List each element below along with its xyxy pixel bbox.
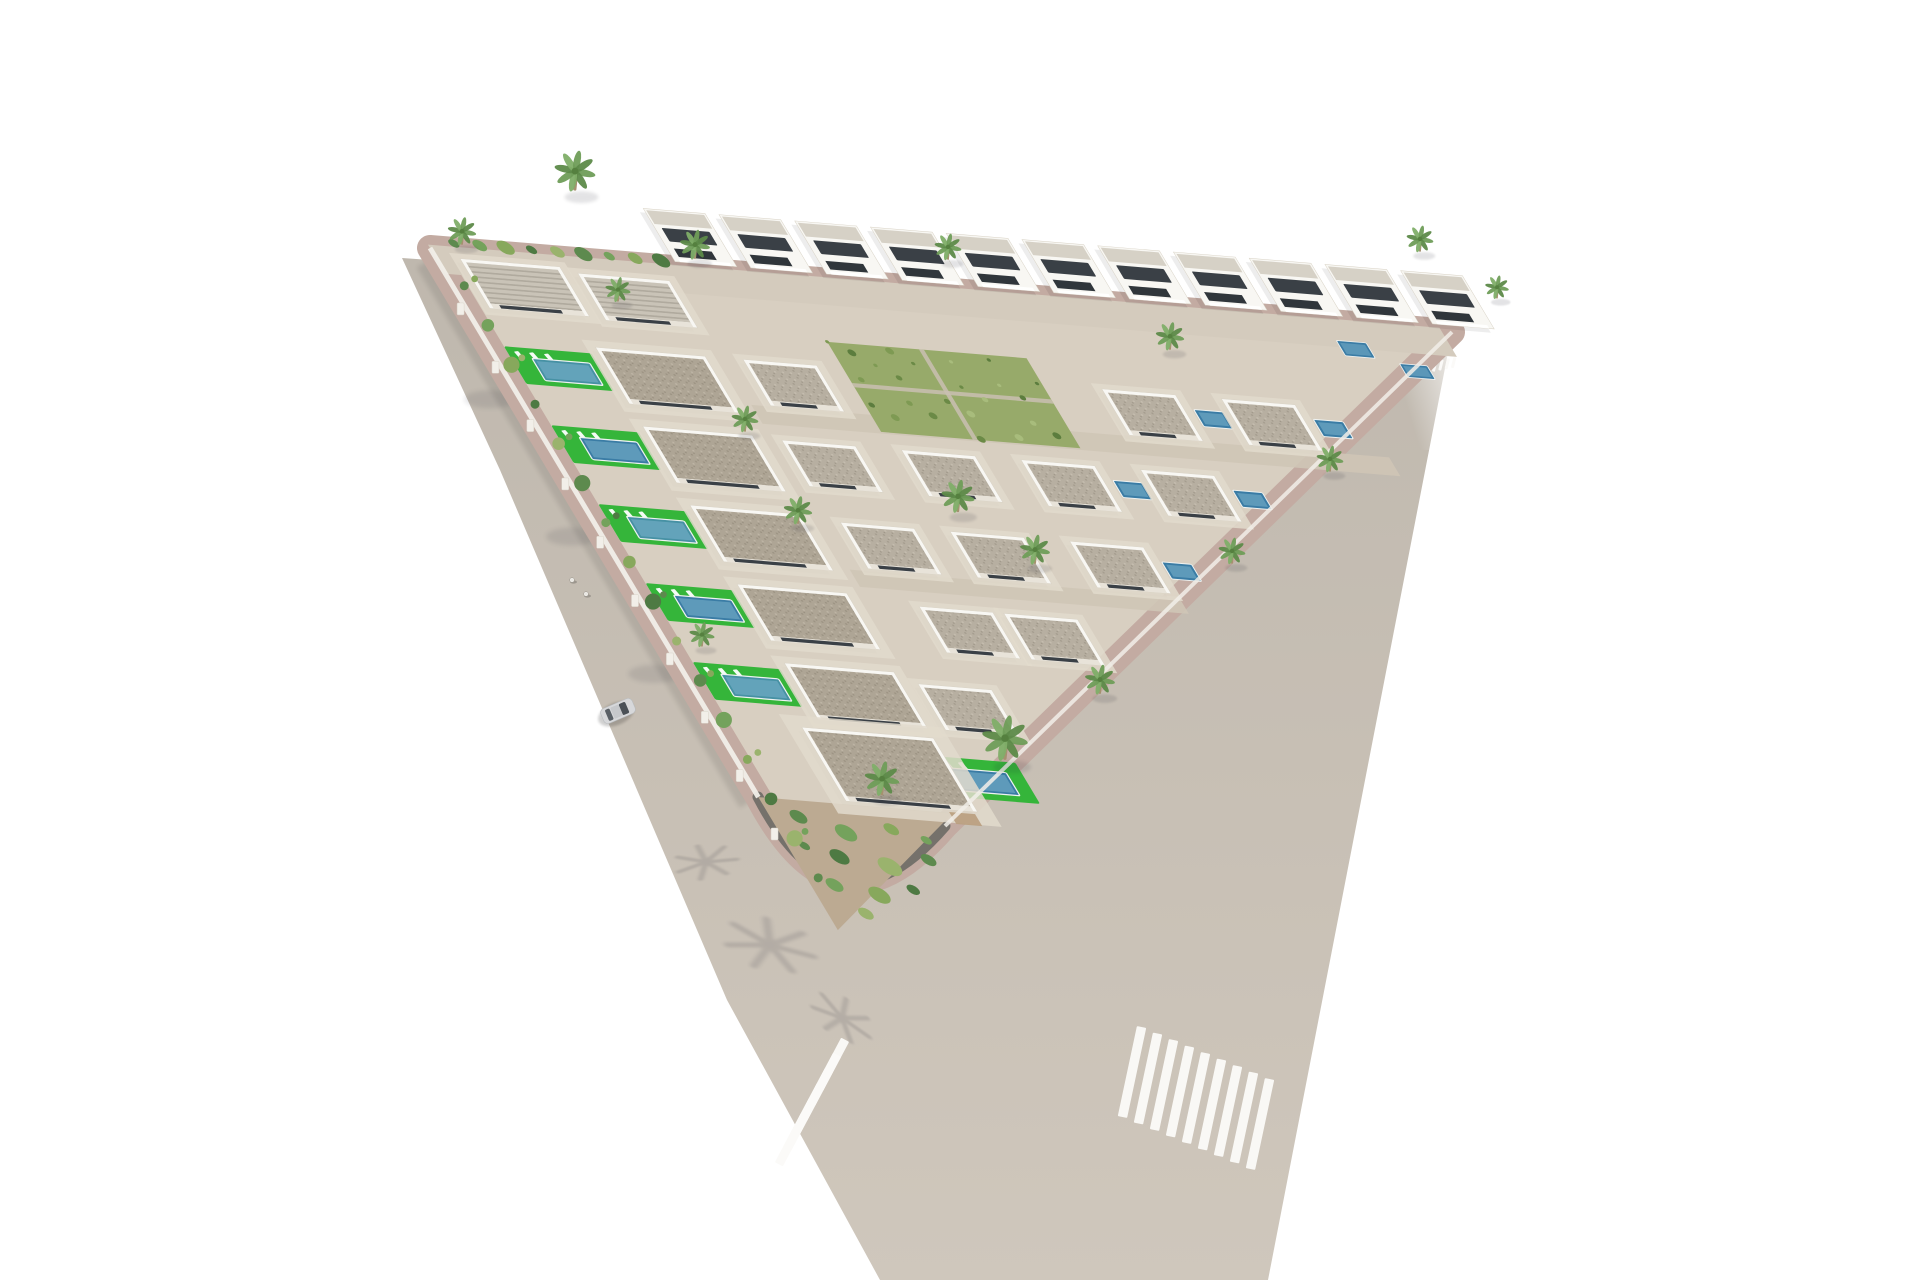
pedestrian-figure bbox=[570, 578, 575, 583]
palm-shadow bbox=[687, 259, 712, 268]
palm-crown bbox=[1418, 237, 1422, 241]
palm-crown bbox=[743, 417, 747, 421]
palm-shadow bbox=[1491, 299, 1511, 306]
perimeter-shrub bbox=[802, 828, 809, 835]
perimeter-shrub bbox=[460, 281, 469, 290]
perimeter-shrub bbox=[566, 433, 573, 440]
palm-tree bbox=[554, 150, 598, 203]
perimeter-shrub bbox=[645, 593, 661, 609]
wall-pillar bbox=[562, 478, 569, 490]
palm-crown bbox=[879, 776, 885, 782]
palm-crown bbox=[1495, 285, 1499, 289]
palm-crown bbox=[460, 229, 465, 234]
perimeter-shrub bbox=[601, 518, 610, 527]
perimeter-shrub bbox=[471, 276, 478, 283]
perimeter-shrub bbox=[531, 400, 540, 409]
perimeter-shrub bbox=[765, 793, 778, 806]
pedestrian-figure bbox=[584, 592, 589, 597]
perimeter-shrub bbox=[518, 354, 525, 361]
perimeter-shrub bbox=[716, 712, 732, 728]
palm-shadow bbox=[1027, 564, 1052, 573]
perimeter-shrub bbox=[613, 512, 620, 519]
wall-pillar bbox=[771, 828, 778, 840]
palm-shadow bbox=[873, 796, 902, 806]
palm-crown bbox=[955, 494, 960, 499]
palm-crown bbox=[1033, 547, 1038, 552]
perimeter-shrub bbox=[707, 670, 714, 677]
perimeter-shrub bbox=[672, 637, 681, 646]
perimeter-shrub bbox=[754, 749, 761, 756]
perimeter-shrub bbox=[660, 591, 667, 598]
palm-shadow bbox=[950, 513, 977, 522]
development-scene bbox=[0, 0, 1920, 1280]
wall-pillar bbox=[701, 711, 708, 723]
palm-crown bbox=[1001, 734, 1009, 742]
perimeter-shrub bbox=[552, 437, 565, 450]
wall-pillar bbox=[597, 536, 604, 548]
palm-crown bbox=[693, 242, 698, 247]
wall-pillar bbox=[457, 303, 464, 315]
palm-crown bbox=[700, 633, 704, 637]
perimeter-shrub bbox=[814, 873, 823, 882]
palm-crown bbox=[1328, 457, 1332, 461]
palm-tree bbox=[1406, 225, 1435, 260]
palm-crown bbox=[616, 288, 620, 292]
perimeter-shrub bbox=[574, 475, 590, 491]
palm-shadow bbox=[1413, 252, 1435, 260]
perimeter-shrub bbox=[482, 319, 495, 332]
palm-crown bbox=[1098, 677, 1103, 682]
perimeter-shrub bbox=[694, 674, 707, 687]
palm-shadow bbox=[1163, 350, 1186, 358]
palm-shadow bbox=[738, 432, 760, 440]
perimeter-shrub bbox=[623, 556, 636, 569]
palm-shadow bbox=[1323, 472, 1345, 480]
palm-shadow bbox=[565, 191, 599, 203]
wall-pillar bbox=[632, 595, 639, 607]
palm-shadow bbox=[993, 761, 1031, 774]
wall-pillar bbox=[492, 361, 499, 373]
palm-shadow bbox=[612, 302, 633, 309]
palm-crown bbox=[796, 508, 801, 513]
palm-shadow bbox=[791, 524, 814, 532]
palm-shadow bbox=[941, 260, 963, 268]
palm-shadow bbox=[1225, 564, 1247, 572]
aerial-render-canvas bbox=[0, 0, 1920, 1280]
wall-pillar bbox=[666, 653, 673, 665]
palm-crown bbox=[572, 168, 579, 175]
palm-crown bbox=[946, 245, 950, 249]
perimeter-shrub bbox=[743, 755, 752, 764]
palm-shadow bbox=[696, 647, 717, 654]
wall-pillar bbox=[736, 770, 743, 782]
palm-crown bbox=[1168, 334, 1173, 339]
perimeter-shrub bbox=[787, 830, 803, 846]
wall-pillar bbox=[527, 420, 534, 432]
palm-shadow bbox=[455, 245, 478, 253]
palm-shadow bbox=[1092, 694, 1117, 703]
perimeter-shrub bbox=[503, 357, 519, 373]
palm-crown bbox=[1230, 549, 1234, 553]
